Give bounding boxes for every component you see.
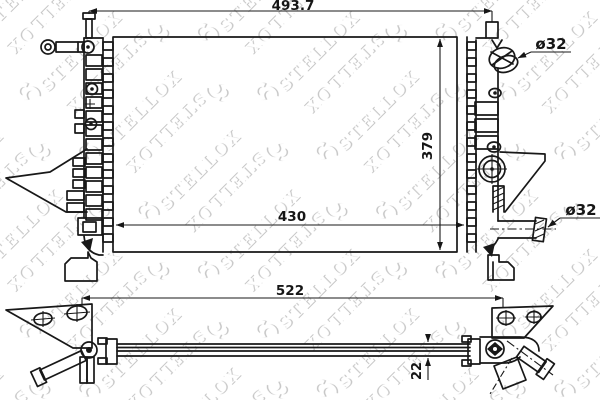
dimension-label: 522 <box>276 283 304 299</box>
dimension-label: 430 <box>278 209 306 225</box>
dimension-label: 493.7 <box>272 0 315 14</box>
radiator-technical-drawing: STELLOX STELLOX STELLOX STELLOX <box>0 0 600 400</box>
watermark-layer <box>0 0 600 400</box>
dimension-label: ø32 <box>535 35 566 53</box>
dimension-label: 22 <box>410 362 425 380</box>
dimension-label: ø32 <box>565 201 596 219</box>
dimension-label: 379 <box>420 132 436 160</box>
drawing-canvas: STELLOX STELLOX STELLOX STELLOX <box>0 0 600 400</box>
